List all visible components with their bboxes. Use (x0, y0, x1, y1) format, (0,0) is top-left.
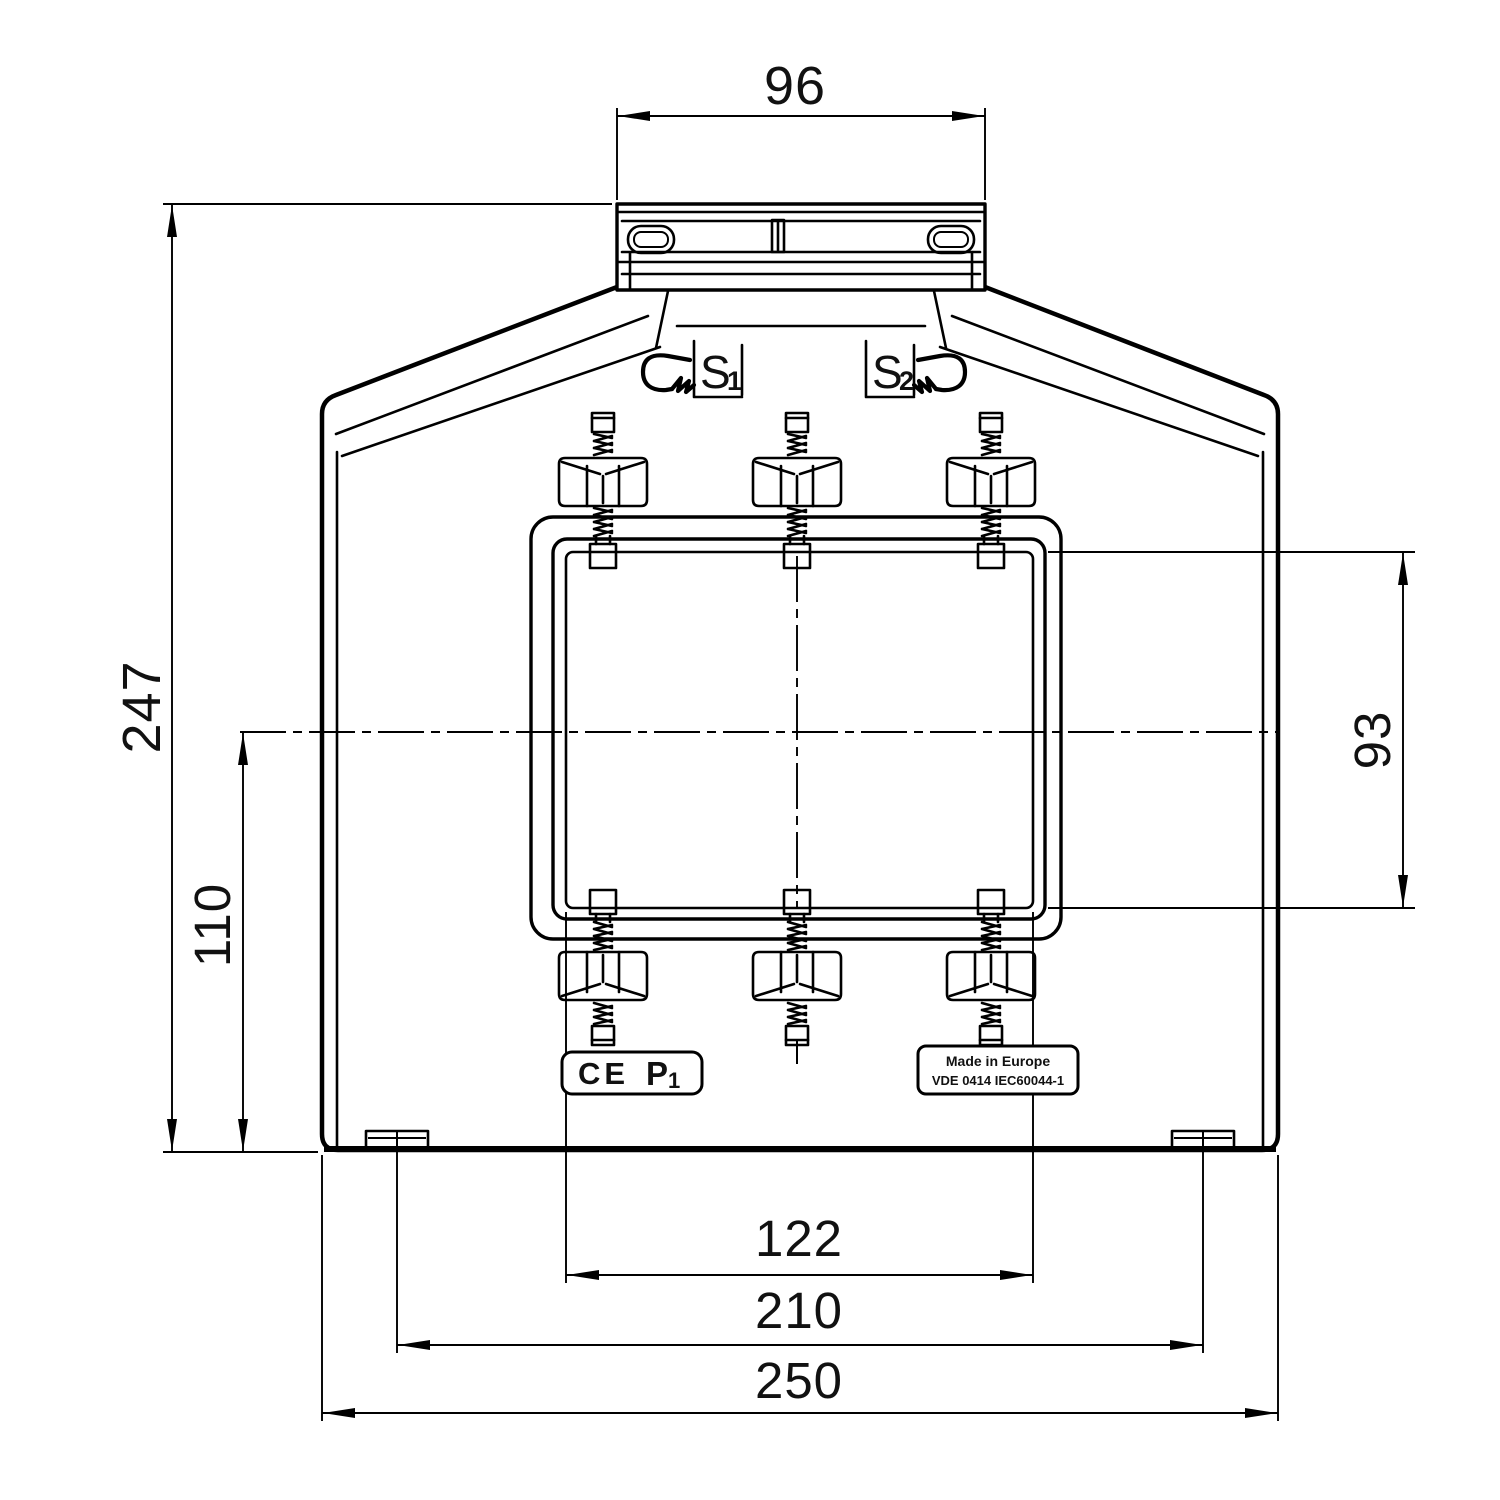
centerlines (240, 556, 1280, 1064)
dim-250-value: 250 (755, 1352, 843, 1409)
terminal-marking-s1: S 1 (694, 341, 742, 398)
winding-arrow-right-icon (914, 355, 965, 392)
wing-screw-bottom-center (753, 890, 841, 1045)
dimension-window-height: 93 (1048, 552, 1415, 908)
dim-93-value: 93 (1344, 711, 1401, 770)
wing-screw-top-right (947, 413, 1035, 568)
dim-122-value: 122 (755, 1210, 843, 1267)
origin-line2: VDE 0414 IEC60044-1 (932, 1073, 1064, 1088)
dim-96-value: 96 (764, 56, 826, 116)
p1-sub: 1 (668, 1068, 680, 1093)
winding-direction-markings: S 1 S 2 (643, 341, 965, 398)
dimension-window-width: 122 (566, 912, 1033, 1283)
dim-210-value: 210 (755, 1282, 843, 1339)
wing-screw-top-center (753, 413, 841, 568)
wing-screw-top-left (559, 413, 647, 568)
terminal-marking-s2: S 2 (866, 341, 914, 398)
dimension-center-height: 110 (184, 732, 248, 1152)
ce-mark: CE (578, 1056, 629, 1091)
origin-line1: Made in Europe (946, 1053, 1050, 1069)
wing-screw-bottom-left (559, 890, 647, 1045)
dim-247-value: 247 (112, 660, 172, 753)
dimension-overall-height: 247 (112, 204, 612, 1152)
s1-sub: 1 (727, 366, 742, 396)
technical-drawing-canvas: S 1 S 2 96 247 110 93 (0, 0, 1500, 1500)
origin-standards-label: Made in Europe VDE 0414 IEC60044-1 (918, 1046, 1078, 1094)
p1-letter: P (646, 1055, 668, 1092)
terminal-block (617, 204, 985, 290)
dimension-top-terminal-width: 96 (617, 56, 985, 200)
busbar-window-opening (566, 552, 1033, 908)
window-clamp-frame (531, 517, 1061, 939)
dim-110-value: 110 (184, 883, 241, 967)
s2-sub: 2 (899, 366, 914, 396)
wing-screw-bottom-right (947, 890, 1035, 1045)
winding-arrow-left-icon (643, 355, 694, 392)
current-transformer-drawing: S 1 S 2 96 247 110 93 (0, 0, 1500, 1500)
ce-p1-label: CE P 1 (562, 1052, 702, 1094)
